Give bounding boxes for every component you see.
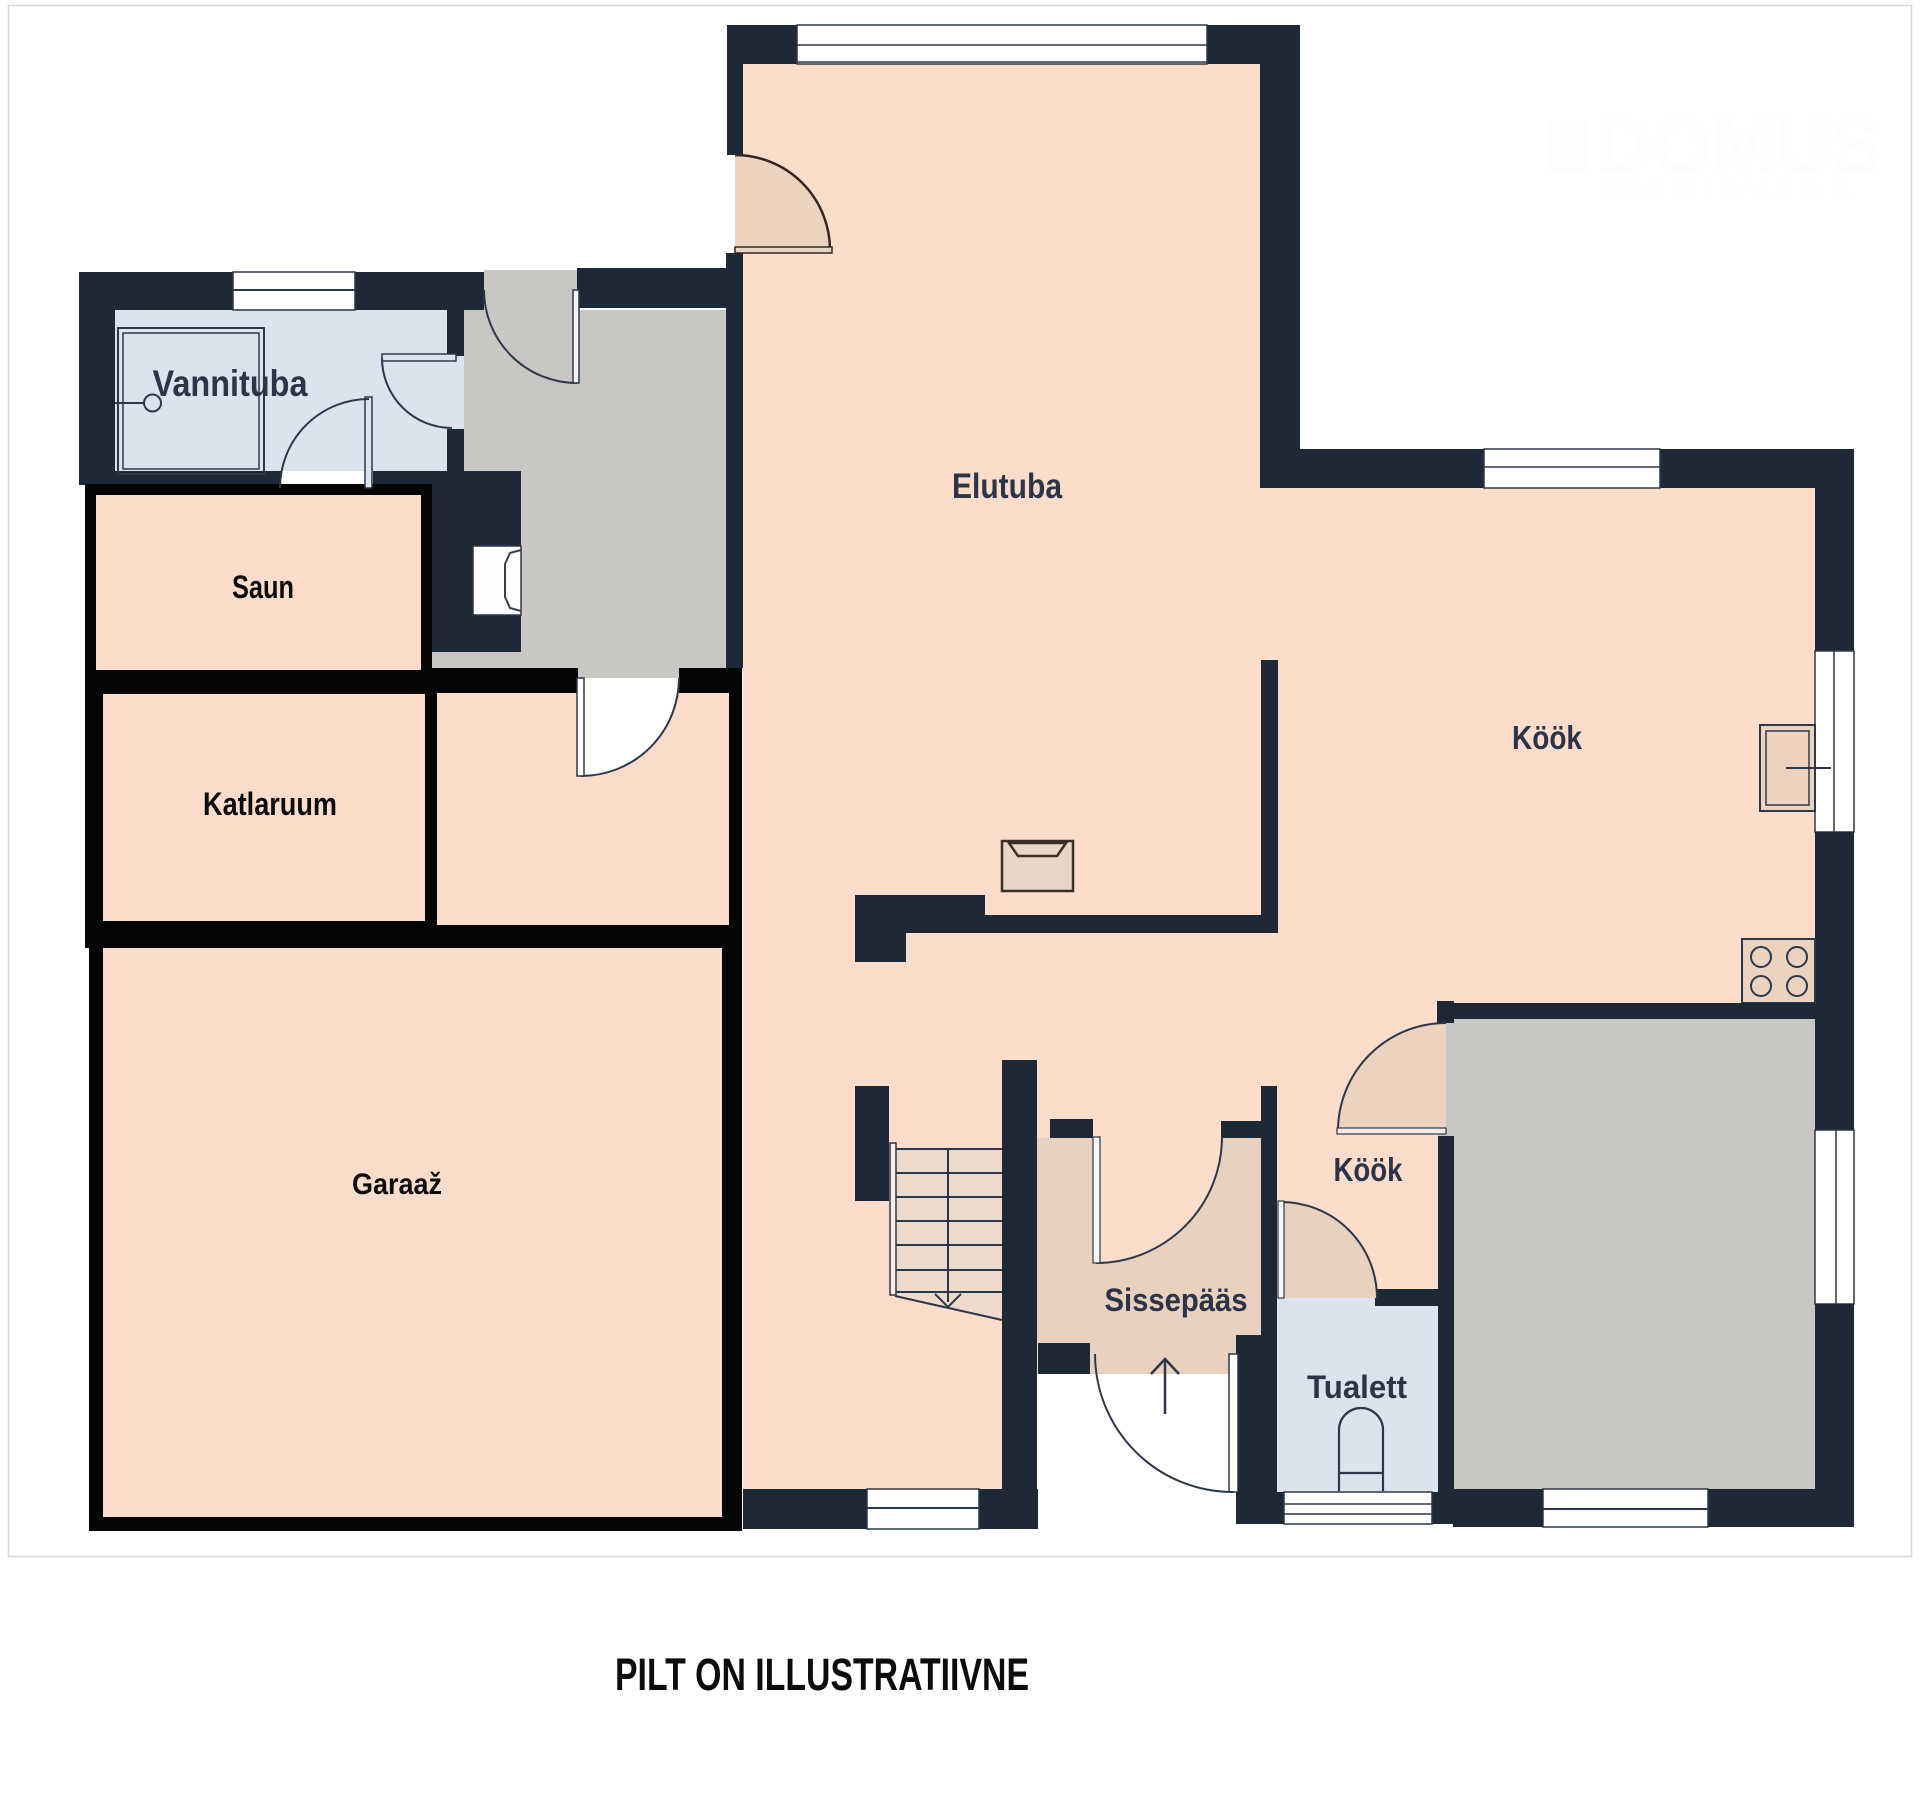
svg-text:Köök: Köök <box>1334 1151 1404 1188</box>
svg-text:Vannituba: Vannituba <box>153 363 308 404</box>
svg-text:Elutuba: Elutuba <box>952 467 1062 506</box>
svg-text:Garaaž: Garaaž <box>352 1168 442 1201</box>
svg-text:PILT ON ILLUSTRATIIVNE: PILT ON ILLUSTRATIIVNE <box>615 1649 1029 1700</box>
svg-text:Katlaruum: Katlaruum <box>203 786 337 822</box>
svg-text:Tualett: Tualett <box>1307 1369 1407 1405</box>
svg-text:Sissepääs: Sissepääs <box>1105 1282 1248 1318</box>
svg-text:KINNISVARA: KINNISVARA <box>1600 179 1860 206</box>
svg-text:DOMUS: DOMUS <box>1596 101 1882 189</box>
svg-text:Köök: Köök <box>1512 719 1583 756</box>
svg-text:Saun: Saun <box>232 569 294 605</box>
